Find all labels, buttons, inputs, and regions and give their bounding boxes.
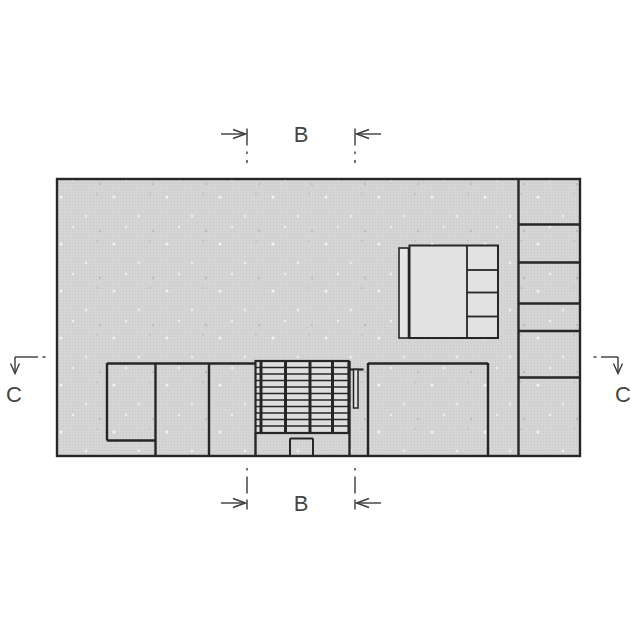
section-marker-c-left: C (6, 357, 45, 407)
handrail-post (354, 370, 359, 409)
section-label-b-top: B (294, 122, 309, 147)
floor-plan-drawing: B B C C (0, 0, 640, 640)
section-label-c-right: C (615, 382, 631, 407)
section-marker-c-right: C (594, 357, 632, 407)
section-marker-b-top: B (221, 122, 381, 164)
section-label-c-left: C (6, 382, 22, 407)
stair-enclosure (256, 361, 349, 433)
bed (399, 246, 498, 339)
section-label-b-bottom: B (294, 491, 309, 516)
bed-headboard (399, 248, 409, 338)
floor-plan-canvas: B B C C (0, 0, 640, 640)
staircase (256, 361, 364, 433)
section-marker-b-bottom: B (221, 468, 381, 516)
